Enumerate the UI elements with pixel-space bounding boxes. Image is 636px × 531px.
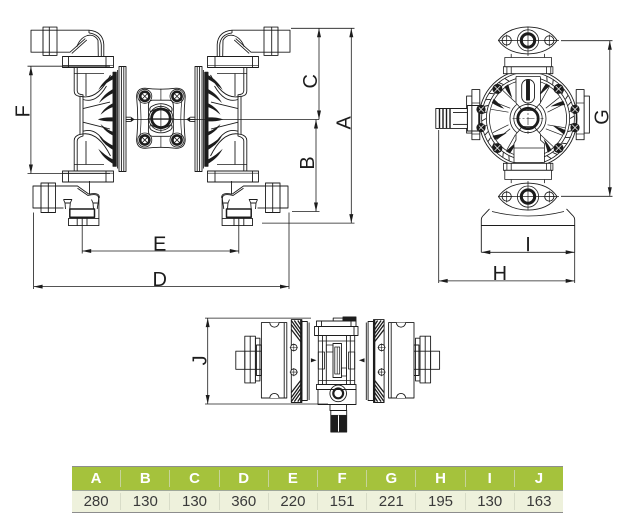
svg-text:E: E (153, 233, 166, 255)
svg-text:A: A (334, 115, 356, 129)
svg-text:J: J (189, 355, 211, 365)
svg-text:D: D (152, 269, 166, 291)
svg-text:C: C (300, 74, 322, 88)
svg-text:I: I (525, 234, 531, 256)
svg-text:G: G (591, 109, 613, 125)
svg-text:H: H (493, 263, 507, 285)
svg-text:B: B (297, 156, 319, 169)
svg-text:F: F (13, 105, 35, 117)
